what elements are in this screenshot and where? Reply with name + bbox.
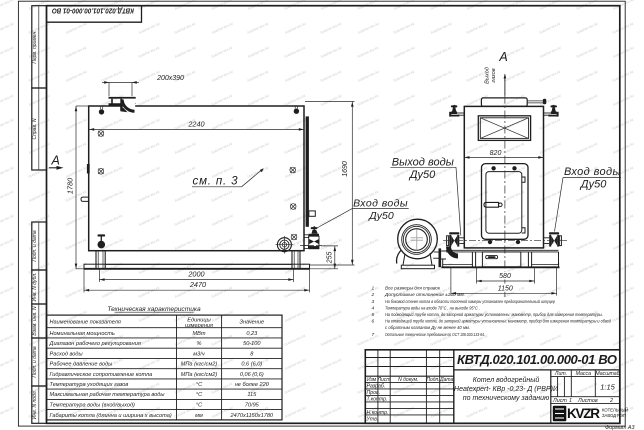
svg-text:°С: °С <box>196 403 203 409</box>
svg-text:2470: 2470 <box>189 280 206 289</box>
svg-text:820: 820 <box>490 150 502 157</box>
svg-text:Гидравлическое сопротивление к: Гидравлическое сопротивление котла <box>50 372 153 378</box>
svg-text:N докум.: N докум. <box>398 377 418 383</box>
svg-text:Ду50: Ду50 <box>408 169 436 181</box>
svg-text:КОТЕЛЬНЫЙ: КОТЕЛЬНЫЙ <box>602 408 628 413</box>
svg-text:Ду50: Ду50 <box>368 210 394 222</box>
svg-text:Все размеры для справок: Все размеры для справок <box>385 286 441 292</box>
svg-text:Котел водогрейный: Котел водогрейный <box>473 376 540 384</box>
svg-text:200х390: 200х390 <box>156 75 184 82</box>
svg-text:Дата: Дата <box>439 377 453 383</box>
svg-text:Выход воды: Выход воды <box>392 156 454 168</box>
svg-text:газов: газов <box>491 68 497 82</box>
svg-text:Н.контр.: Н.контр. <box>367 410 389 416</box>
svg-text:Выход: Выход <box>485 67 491 84</box>
svg-text:%: % <box>197 341 202 347</box>
svg-text:Остальные технические требован: Остальные технические требования по ОСТ … <box>385 332 485 338</box>
svg-text:КВТД.020.101.00.000-01 ВО: КВТД.020.101.00.000-01 ВО <box>52 6 134 15</box>
svg-text:Вход воды: Вход воды <box>564 166 621 178</box>
svg-text:Инв. N дубл.: Инв. N дубл. <box>32 273 38 302</box>
svg-text:2000: 2000 <box>187 270 204 279</box>
svg-text:Масштаб: Масштаб <box>595 371 620 377</box>
svg-text:мм: мм <box>195 413 203 419</box>
svg-text:Справ. N: Справ. N <box>32 118 38 139</box>
svg-text:Пров.: Пров. <box>367 390 381 396</box>
svg-text:0,06 (0,6): 0,06 (0,6) <box>240 372 264 378</box>
svg-text:Подп. и дата: Подп. и дата <box>32 346 38 378</box>
svg-text:Т.контр.: Т.контр. <box>367 397 388 403</box>
svg-text:2470х1150х1780: 2470х1150х1780 <box>230 413 274 419</box>
svg-text:Расход воды: Расход воды <box>50 351 83 357</box>
svg-text:Максимальная рабочая температу: Максимальная рабочая температура воды <box>50 392 165 398</box>
svg-text:На отводящей трубе котла, до з: На отводящей трубе котла, до запорной ар… <box>385 318 611 325</box>
svg-text:МПа (кгс/см2): МПа (кгс/см2) <box>181 362 218 368</box>
svg-text:Вход воды: Вход воды <box>353 198 408 210</box>
svg-text:Лист: Лист <box>552 398 567 404</box>
svg-text:Heatexpert- КВр -0,23- Д (РВР): Heatexpert- КВр -0,23- Д (РВР)И <box>454 386 559 393</box>
svg-text:Масса: Масса <box>576 371 591 377</box>
svg-text:А: А <box>498 50 507 64</box>
svg-text:м3/ч: м3/ч <box>193 351 204 357</box>
svg-text:Ду50: Ду50 <box>579 178 607 190</box>
svg-text:KVZR: KVZR <box>567 406 600 421</box>
svg-text:Листов: Листов <box>577 398 598 404</box>
svg-text:Техническая характеристика: Техническая характеристика <box>107 306 201 313</box>
svg-text:580: 580 <box>499 273 511 280</box>
svg-text:4: 4 <box>372 305 375 311</box>
svg-text:Изм: Изм <box>367 377 377 383</box>
svg-text:6: 6 <box>372 319 375 325</box>
svg-text:5: 5 <box>372 312 375 318</box>
svg-text:50-100: 50-100 <box>243 341 261 347</box>
svg-text:А: А <box>51 154 60 168</box>
svg-text:1150: 1150 <box>498 286 513 293</box>
svg-text:см. п. 3: см. п. 3 <box>193 176 239 188</box>
svg-text:Инв. N подл.: Инв. N подл. <box>32 390 38 419</box>
svg-text:Подп.: Подп. <box>426 377 439 383</box>
svg-text:Разраб.: Разраб. <box>367 384 386 390</box>
svg-text:2: 2 <box>609 398 613 404</box>
svg-text:Допустимые отклонения ±100 мм: Допустимые отклонения ±100 мм. <box>384 292 465 298</box>
svg-text:°С: °С <box>196 382 203 388</box>
svg-text:1:15: 1:15 <box>600 383 615 392</box>
svg-text:На боковой стенке котла в обла: На боковой стенке котла в области топочн… <box>385 298 555 305</box>
svg-text:Подп. и дата: Подп. и дата <box>32 230 38 262</box>
svg-text:1: 1 <box>372 286 375 292</box>
svg-text:255: 255 <box>327 251 334 264</box>
svg-text:Формат А3: Формат А3 <box>605 425 635 430</box>
svg-text:115: 115 <box>247 392 257 398</box>
svg-text:2240: 2240 <box>187 119 204 128</box>
svg-text:0,6 (6,0): 0,6 (6,0) <box>241 362 262 368</box>
svg-text:3: 3 <box>372 299 375 305</box>
svg-text:не более 220: не более 220 <box>235 382 270 388</box>
svg-text:2: 2 <box>371 292 375 298</box>
svg-text:Значение: Значение <box>240 320 265 326</box>
svg-text:1780: 1780 <box>66 178 75 194</box>
svg-text:°С: °С <box>196 392 203 398</box>
svg-text:На подводящий трубе котла, д: На подводящий трубе котла, до запорной а… <box>385 311 603 318</box>
svg-text:с обратным клапаном Ду не мен: с обратным клапаном Ду не менее 40 мм. <box>385 325 470 331</box>
svg-text:Лит.: Лит. <box>554 371 567 377</box>
svg-text:Габариты котла (длинна и ширин: Габариты котла (длинна и ширина х высота… <box>50 413 172 419</box>
svg-text:7: 7 <box>372 332 375 338</box>
svg-text:ЗАВОД РЭП: ЗАВОД РЭП <box>602 413 626 418</box>
svg-text:Наименование показателя: Наименование показателя <box>50 320 121 326</box>
svg-text:1690: 1690 <box>342 161 349 177</box>
svg-text:МПа (кгс/см2): МПа (кгс/см2) <box>181 372 218 378</box>
svg-text:Рабочее давление воды: Рабочее давление воды <box>50 362 113 368</box>
svg-text:измерения: измерения <box>185 323 213 329</box>
svg-text:Температура воды (вход/выход): Температура воды (вход/выход) <box>50 403 136 409</box>
svg-text:КВТД.020.101.00.000-01 ВО: КВТД.020.101.00.000-01 ВО <box>457 352 617 367</box>
svg-text:Диапазон рабочего регулировани: Диапазон рабочего регулирования <box>49 341 141 347</box>
svg-text:1: 1 <box>569 398 572 404</box>
svg-text:Утв.: Утв. <box>367 416 379 422</box>
svg-text:Номинальная мощность: Номинальная мощность <box>50 331 115 337</box>
svg-text:Температура воды на входе 70°: Температура воды на входе 70°С , на выхо… <box>385 305 480 311</box>
svg-text:0,23: 0,23 <box>246 331 258 337</box>
svg-text:70/95: 70/95 <box>245 403 260 409</box>
svg-text:Лист: Лист <box>377 377 391 383</box>
svg-text:Взам. инв. N: Взам. инв. N <box>32 306 38 336</box>
svg-text:Температура уходящих газов: Температура уходящих газов <box>50 382 129 388</box>
svg-text:Перв. примен.: Перв. примен. <box>32 30 38 63</box>
svg-text:МВт: МВт <box>192 331 205 337</box>
svg-text:по техническому заданию: по техническому заданию <box>463 394 550 402</box>
